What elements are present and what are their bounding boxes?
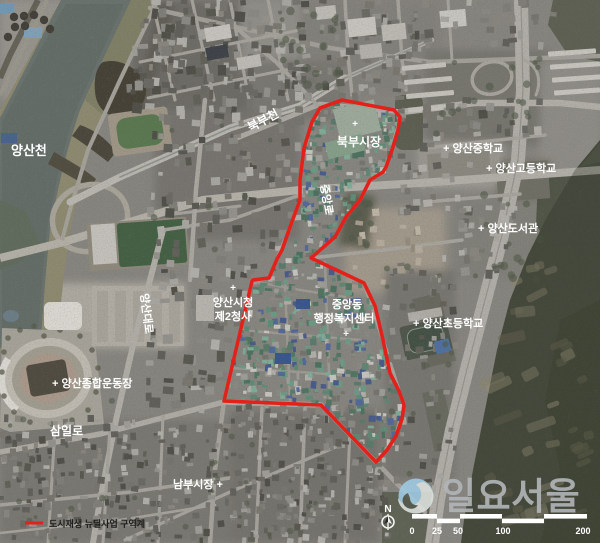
svg-text:양산시청: 양산시청 [213,295,253,309]
svg-text:+: + [352,119,358,130]
svg-text:+ 양산중학교: + 양산중학교 [443,141,503,155]
svg-text:북부시장: 북부시장 [337,135,381,149]
svg-text:중앙동: 중앙동 [332,298,362,311]
svg-text:제2청사: 제2청사 [215,309,252,323]
svg-text:삼일로: 삼일로 [50,423,83,438]
svg-text:도시재생 뉴딜사업 구역계: 도시재생 뉴딜사업 구역계 [49,518,145,529]
svg-text:25: 25 [432,526,442,536]
svg-text:100: 100 [495,526,510,536]
svg-text:남부시장 +: 남부시장 + [173,477,223,491]
svg-text:+: + [343,329,349,340]
svg-text:일요서울: 일요서울 [442,476,580,517]
svg-text:N: N [384,504,391,515]
svg-text:0: 0 [409,526,414,536]
svg-text:행정복지센터: 행정복지센터 [314,311,375,325]
svg-text:+: + [230,283,236,294]
svg-text:200: 200 [575,526,590,536]
svg-text:+ 양산도서관: + 양산도서관 [478,221,538,235]
svg-text:+ 양산고등학교: + 양산고등학교 [486,161,556,175]
svg-text:+ 양산종합운동장: + 양산종합운동장 [52,376,132,390]
svg-text:양산천: 양산천 [11,143,47,158]
svg-text:+ 양산초등학교: + 양산초등학교 [413,316,483,330]
svg-text:50: 50 [453,526,463,536]
